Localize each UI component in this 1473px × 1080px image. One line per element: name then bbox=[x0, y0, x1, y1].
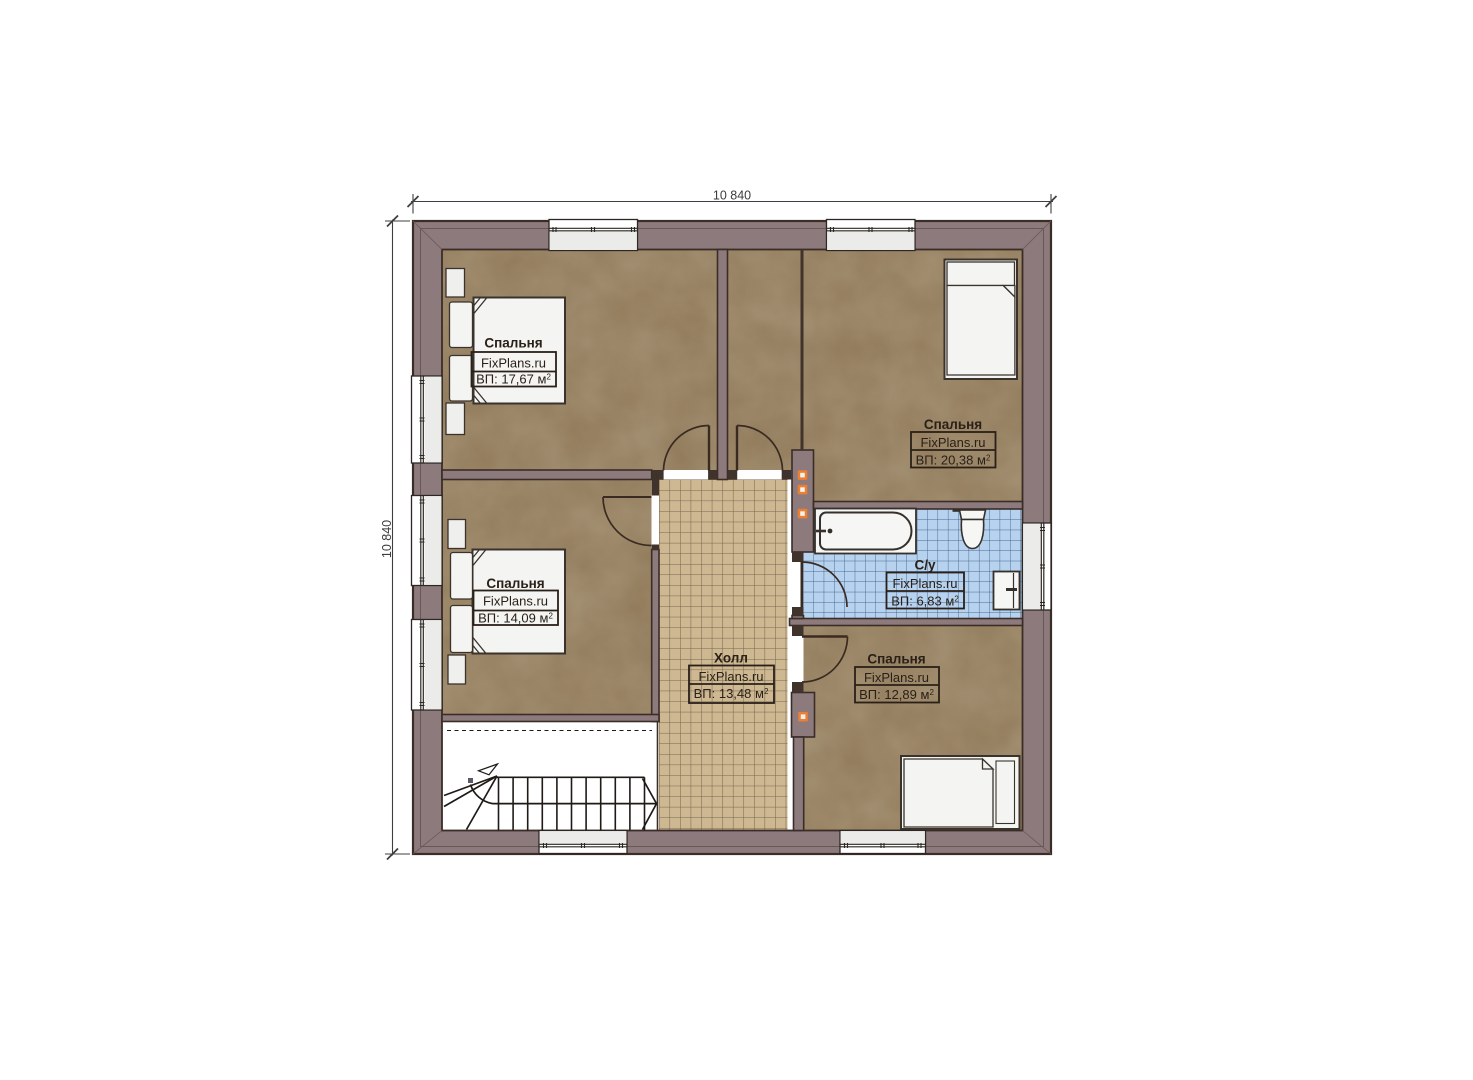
svg-text:FixPlans.ru: FixPlans.ru bbox=[483, 594, 548, 609]
svg-text:С/у: С/у bbox=[914, 558, 936, 573]
svg-text:Спальня: Спальня bbox=[867, 652, 925, 667]
svg-text:ВП: 13,48 м2: ВП: 13,48 м2 bbox=[694, 686, 769, 701]
svg-text:FixPlans.ru: FixPlans.ru bbox=[920, 435, 985, 450]
svg-text:Спальня: Спальня bbox=[924, 417, 982, 432]
svg-text:10 840: 10 840 bbox=[713, 189, 751, 203]
svg-text:Холл: Холл bbox=[714, 650, 748, 665]
svg-text:ВП: 20,38 м2: ВП: 20,38 м2 bbox=[916, 453, 991, 468]
svg-text:Спальня: Спальня bbox=[484, 336, 542, 351]
svg-text:ВП: 14,09 м2: ВП: 14,09 м2 bbox=[478, 611, 553, 626]
svg-text:FixPlans.ru: FixPlans.ru bbox=[892, 576, 957, 591]
svg-text:Спальня: Спальня bbox=[486, 576, 544, 591]
svg-text:FixPlans.ru: FixPlans.ru bbox=[864, 670, 929, 685]
svg-text:10 840: 10 840 bbox=[380, 520, 394, 558]
svg-text:ВП: 12,89 м2: ВП: 12,89 м2 bbox=[859, 687, 934, 702]
svg-text:FixPlans.ru: FixPlans.ru bbox=[481, 356, 546, 371]
svg-text:ВП: 6,83 м2: ВП: 6,83 м2 bbox=[891, 594, 959, 609]
svg-text:ВП: 17,67 м2: ВП: 17,67 м2 bbox=[476, 372, 551, 387]
svg-text:FixPlans.ru: FixPlans.ru bbox=[698, 669, 763, 684]
